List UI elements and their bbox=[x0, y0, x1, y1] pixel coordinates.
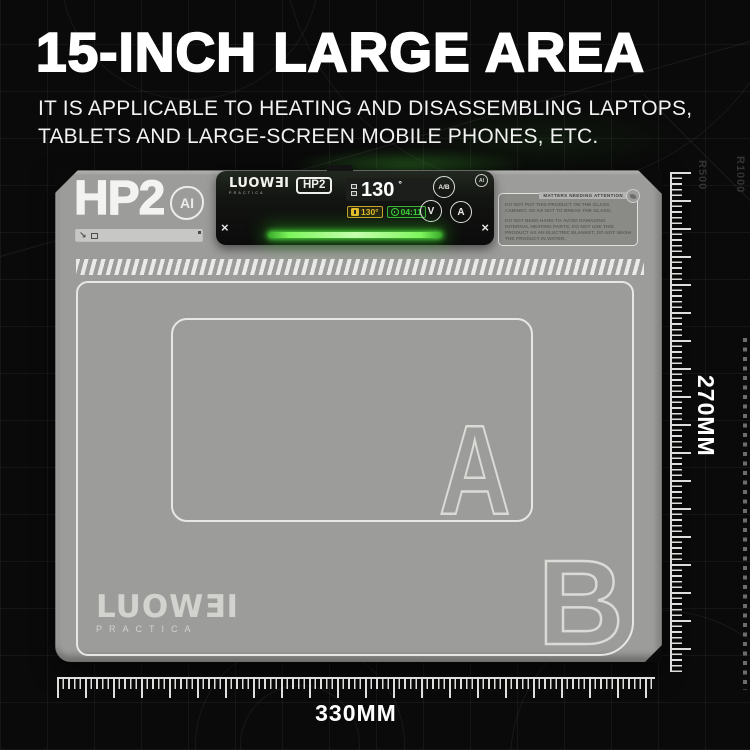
width-ruler bbox=[57, 677, 655, 699]
ruler-ticks-major bbox=[57, 679, 655, 698]
brand-logo: LUOWƎI bbox=[229, 178, 289, 190]
panel-ai-badge: AI bbox=[475, 174, 488, 187]
ai-badge-label: AI bbox=[180, 195, 194, 211]
timer-icon bbox=[391, 208, 399, 216]
blueprint-perforation bbox=[743, 338, 747, 690]
arrow-icon: ↘ bbox=[79, 232, 87, 241]
status-badges: 130° 04:11 bbox=[347, 206, 426, 218]
width-dimension-label: 330MM bbox=[57, 700, 655, 727]
timer-value: 04:11 bbox=[401, 207, 422, 217]
height-dimension-label: 270MM bbox=[695, 375, 719, 455]
close-icon: × bbox=[481, 221, 489, 235]
page-title: 15-INCH LARGE AREA bbox=[36, 20, 645, 84]
corner-chamfer bbox=[638, 170, 662, 194]
corner-chamfer bbox=[645, 645, 662, 662]
mat-model-label: HP2 bbox=[74, 175, 164, 223]
brand-sub-label: PRACTICA bbox=[229, 191, 289, 195]
heating-mat: HP2 AI ↘ LUOWƎI PRACTICA HP2 130 ° 13 bbox=[55, 170, 662, 662]
leaf-icon bbox=[626, 189, 640, 203]
warning-title: MATTERS NEEDING ATTENTION bbox=[539, 192, 627, 199]
mat-brand-logo: LUOWƎI PRACTICA bbox=[96, 592, 239, 634]
panel-brand: LUOWƎI PRACTICA bbox=[229, 178, 289, 195]
square-icon bbox=[91, 233, 98, 239]
led-strip bbox=[268, 232, 442, 238]
display-mode-icon bbox=[351, 184, 357, 196]
set-temp-icon bbox=[351, 208, 359, 216]
zone-b-letter: B bbox=[538, 542, 624, 663]
ruler-ticks-major bbox=[672, 172, 691, 672]
up-button: A bbox=[450, 201, 472, 223]
hatched-strip bbox=[76, 259, 644, 275]
model-badge: HP2 bbox=[296, 177, 332, 194]
height-ruler bbox=[670, 172, 692, 672]
ai-badge: AI bbox=[170, 186, 204, 220]
brand-sub-label: PRACTICA bbox=[96, 624, 239, 634]
warning-paragraph-1: DO NOT PUT THIS PRODUCT ON THE GLASS CAB… bbox=[505, 203, 631, 215]
subtitle-line-2: TABLETS AND LARGE-SCREEN MOBILE PHONES, … bbox=[38, 123, 692, 151]
brand-logo: LUOWƎI bbox=[96, 592, 239, 622]
subtitle-line-1: IT IS APPLICABLE TO HEATING AND DISASSEM… bbox=[38, 95, 692, 123]
blueprint-label-r500: R500 bbox=[696, 160, 708, 196]
degree-symbol: ° bbox=[398, 179, 402, 189]
blueprint-label-r1000: R1000 bbox=[734, 156, 746, 200]
product-promo-image: R500 R1000 15-INCH LARGE AREA IT IS APPL… bbox=[0, 0, 750, 750]
set-temp-badge: 130° bbox=[347, 206, 383, 218]
ab-toggle-button: A/B bbox=[433, 176, 455, 198]
page-subtitle: IT IS APPLICABLE TO HEATING AND DISASSEM… bbox=[38, 95, 692, 150]
warning-paragraph-2: DO NOT BEND HARD TO AVOID DAMAGING INTER… bbox=[505, 219, 631, 243]
display-screen: 130 ° bbox=[346, 178, 434, 201]
zone-a-letter: A bbox=[439, 407, 511, 534]
control-panel: LUOWƎI PRACTICA HP2 130 ° 130° 04:11 A/B bbox=[216, 171, 494, 245]
current-temp-value: 130 bbox=[361, 180, 394, 200]
set-temp-value: 130° bbox=[361, 207, 379, 217]
close-icon: × bbox=[221, 221, 229, 235]
warning-box: MATTERS NEEDING ATTENTION DO NOT PUT THI… bbox=[498, 193, 638, 246]
model-bar: ↘ bbox=[75, 229, 203, 243]
down-button: V bbox=[420, 200, 442, 222]
